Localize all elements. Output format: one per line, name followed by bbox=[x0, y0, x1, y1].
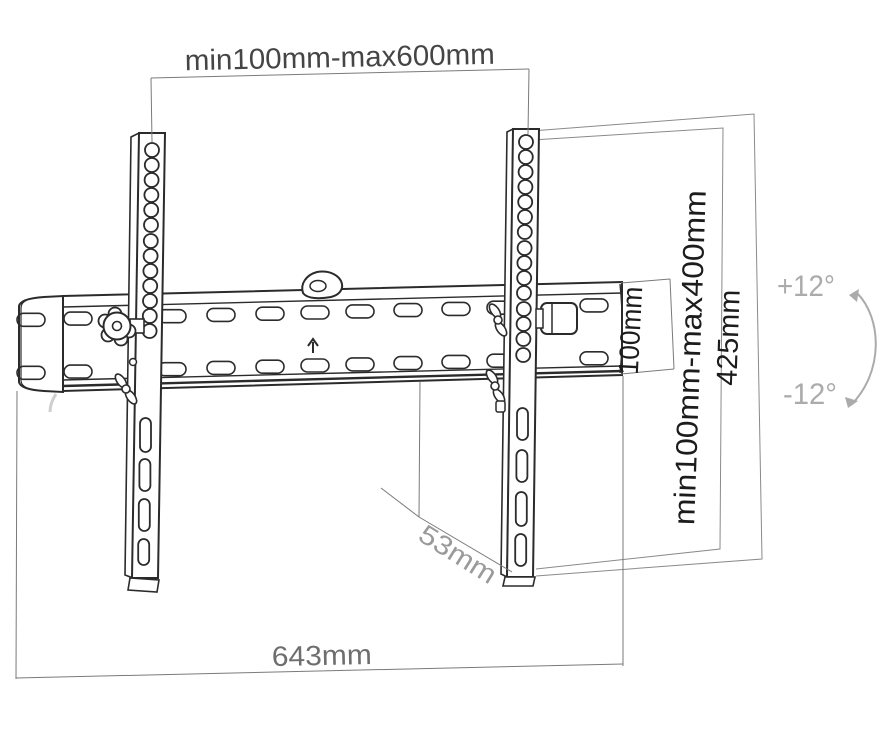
tilt-annotation: +12° -12° bbox=[777, 270, 876, 411]
dim-rail-width-range: min100mm-max600mm bbox=[151, 39, 529, 142]
dim-label-total-width: 643mm bbox=[271, 639, 372, 672]
tilt-up-label: +12° bbox=[777, 270, 835, 303]
tilt-arrow-head-top bbox=[849, 289, 859, 302]
wall-plate-end-cap bbox=[19, 296, 63, 392]
dim-label-rail-width-range: min100mm-max600mm bbox=[185, 39, 496, 77]
dim-label-bracket-height: 425mm bbox=[711, 289, 746, 386]
dim-mount-depth: 53mm bbox=[381, 382, 512, 590]
dim-label-mount-depth: 53mm bbox=[413, 519, 502, 590]
wall-mount-dimension-diagram: min100mm-max600mm min100mm-max400mm 425m… bbox=[0, 0, 891, 729]
tilt-arrow-icon bbox=[851, 293, 876, 405]
dim-label-rail-height: 100mm bbox=[613, 286, 649, 376]
level-bubble-icon bbox=[302, 272, 342, 299]
tension-knob-right bbox=[536, 303, 577, 334]
tilt-down-label: -12° bbox=[783, 378, 837, 411]
dim-label-vesa-height-range: min100mm-max400mm bbox=[668, 190, 713, 526]
dim-rail-height: 100mm bbox=[613, 279, 674, 375]
